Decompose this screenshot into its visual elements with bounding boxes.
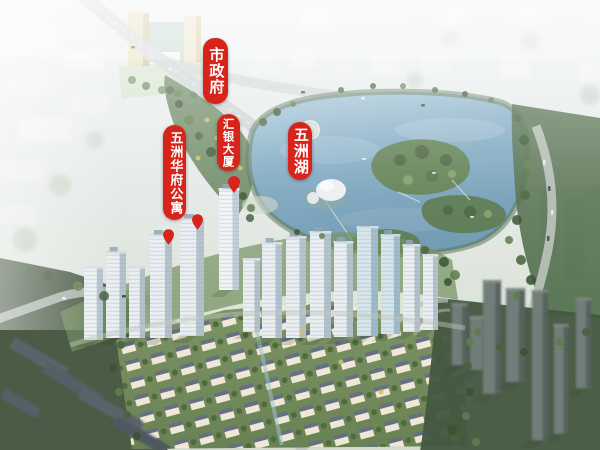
label-city-government: 市政府: [203, 38, 228, 104]
aerial-rendering: 市政府 五洲华府公寓 汇银大厦 五洲湖: [0, 0, 600, 450]
location-marker-icon: [192, 214, 203, 230]
label-wuzhou-lake: 五洲湖: [288, 122, 312, 180]
label-huiyin-tower: 汇银大厦: [217, 114, 240, 171]
location-marker-icon: [163, 229, 174, 245]
scene-art: [0, 0, 600, 450]
label-wuzhou-huafu-apartments: 五洲华府公寓: [163, 125, 186, 220]
location-marker-icon: [228, 176, 240, 193]
haze-top: [0, 0, 600, 60]
